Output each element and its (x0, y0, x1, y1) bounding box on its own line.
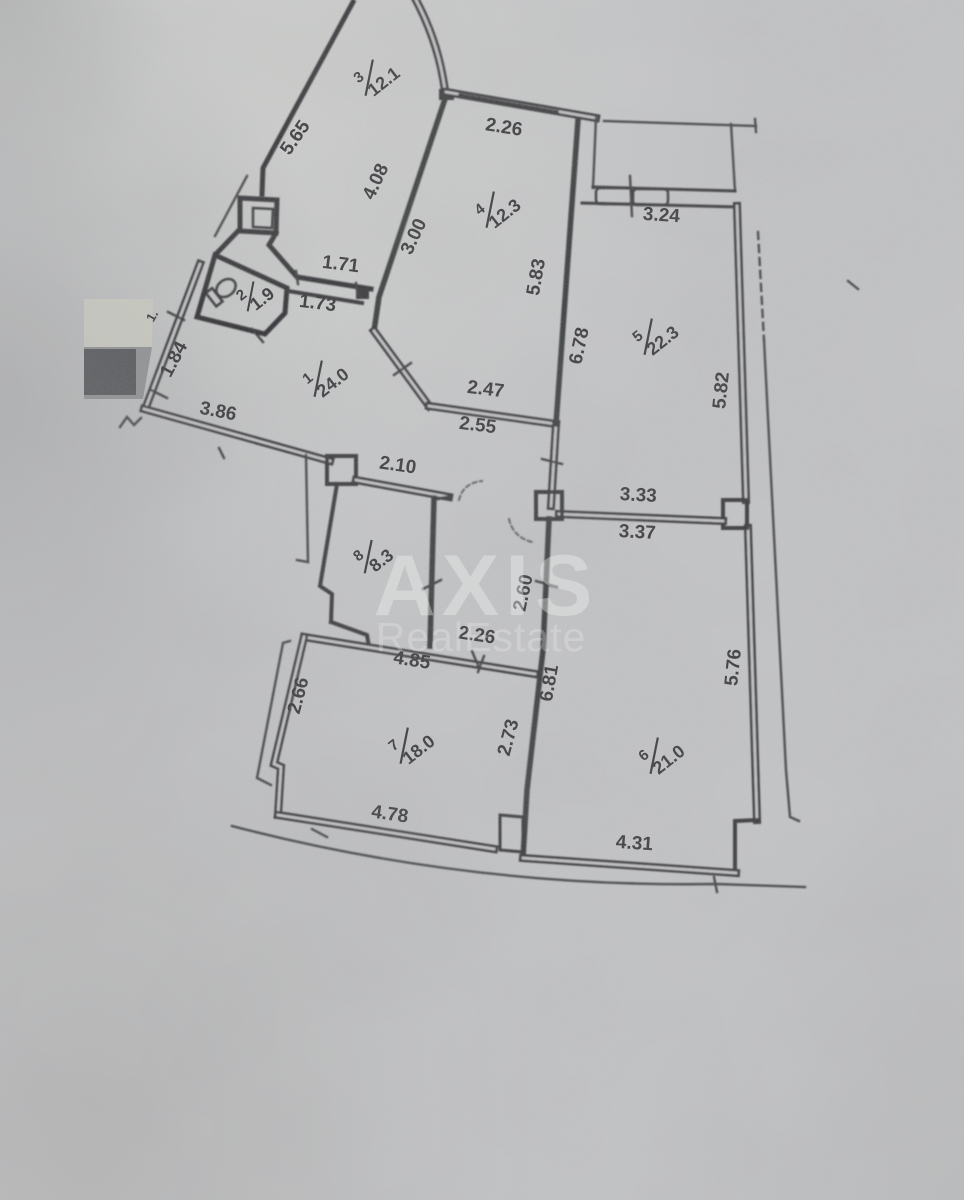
svg-text:RealEstate: RealEstate (376, 614, 587, 660)
